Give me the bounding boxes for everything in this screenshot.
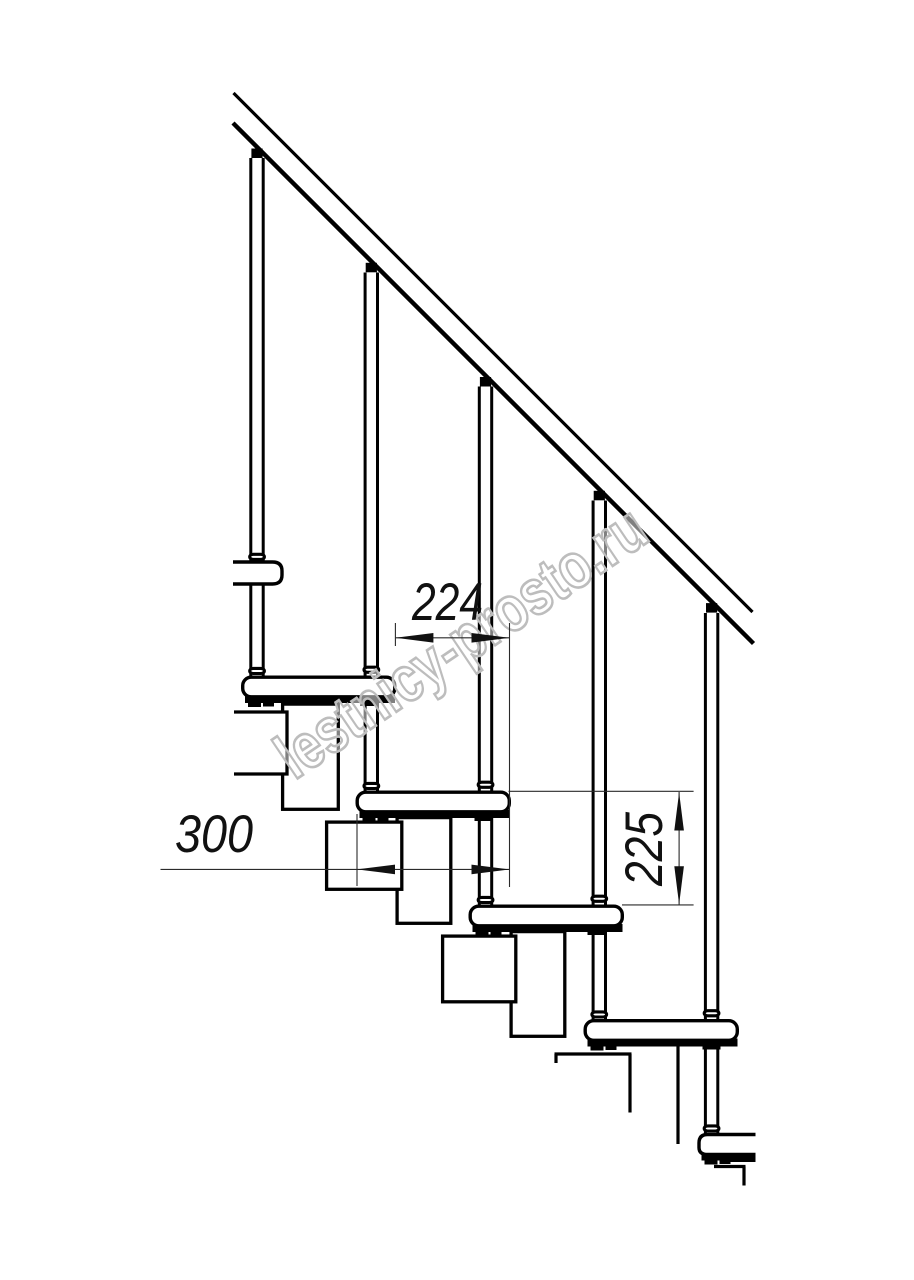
svg-text:300: 300 [175,805,253,864]
svg-text:225: 225 [615,812,674,887]
svg-text:224: 224 [411,573,483,632]
